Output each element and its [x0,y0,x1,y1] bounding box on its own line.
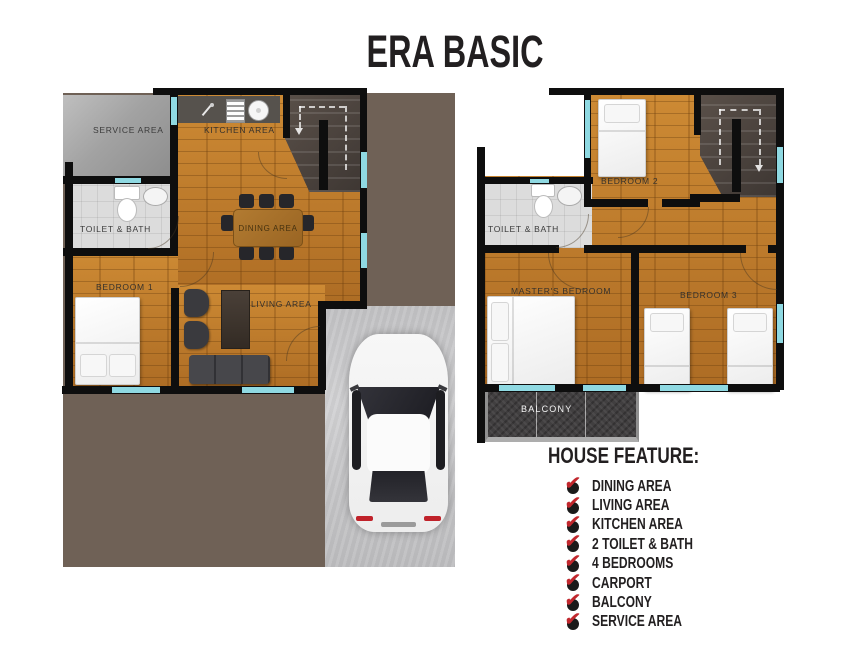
toilet-bath-label-gf: TOILET & BATH [80,224,151,234]
stair-rail [732,119,741,192]
armchair [184,289,209,317]
balcony-area [485,392,639,442]
bed-bedroom3-right [727,308,773,390]
feature-item: 2 TOILET & BATH [565,535,788,554]
wall [776,88,784,390]
toilet-bath-label-2f: TOILET & BATH [488,224,559,234]
stairs-down-arrow-icon [295,128,303,135]
features-list: DINING AREA LIVING AREA KITCHEN AREA 2 T… [565,477,788,632]
window [660,385,728,391]
wall [360,90,367,308]
wall [584,199,648,207]
service-area-label: SERVICE AREA [93,125,164,135]
stair-rail [319,120,328,190]
wall [483,245,559,253]
window [777,147,783,183]
stairs-path [299,106,301,128]
window [171,97,177,125]
car-taillight [424,516,441,521]
feature-item: KITCHEN AREA [565,516,788,535]
dining-chair [259,246,274,260]
bedroom3-label: BEDROOM 3 [680,290,737,300]
floorplan-poster: ERA BASIC DINING AREA [0,0,849,657]
car-taillight [356,516,373,521]
window [585,100,590,158]
feature-item: BALCONY [565,593,788,612]
window [361,233,367,268]
feature-item: CARPORT [565,574,788,593]
house-features: HOUSE FEATURE: DINING AREA LIVING AREA K… [548,443,788,632]
page-title: ERA BASIC [171,26,740,78]
balcony-divider [536,392,537,437]
bed-bedroom3-left [644,308,690,390]
stairs-path [759,109,761,165]
balcony-label: BALCONY [521,404,572,414]
wall [584,245,746,253]
sink-icon-toilet-2f [557,186,582,206]
feature-item: DINING AREA [565,477,788,496]
wall [283,93,290,138]
car-roof [367,414,430,474]
feature-item: LIVING AREA [565,496,788,515]
dining-chair [279,194,294,208]
window [583,385,626,391]
window [112,387,160,393]
wall [153,88,367,95]
feature-item: SERVICE AREA [565,613,788,632]
bed-bedroom1 [75,297,140,385]
window [115,178,141,183]
car-rear-window [369,471,428,502]
stairs-down-arrow-icon [755,165,763,172]
stove-icon [226,99,245,123]
outside-cover [455,90,585,176]
window [777,304,783,343]
window [499,385,555,391]
car-side-window [352,390,361,470]
master-bedroom-label: MASTER'S BEDROOM [511,286,611,296]
car-side-window [436,390,445,470]
kitchen-area-label: KITCHEN AREA [204,125,275,135]
dining-table: DINING AREA [233,209,303,247]
toilet-bowl-2f [534,195,553,218]
service-area [63,95,175,180]
balcony-divider [585,392,586,437]
window [530,179,549,183]
car [349,334,448,532]
dining-area-label: DINING AREA [238,224,297,233]
bedroom2-label: BEDROOM 2 [601,176,658,186]
dining-chair [239,194,254,208]
armchair [184,321,209,349]
dining-chair [259,194,274,208]
dining-chair [279,246,294,260]
wall [65,162,73,394]
sofa [189,355,270,384]
window [242,387,294,393]
wall [477,147,485,443]
wall [694,93,701,135]
stairs-path [719,109,759,111]
window [361,152,367,188]
stairs-path [719,109,721,165]
stairs-path [345,106,347,170]
toilet-bowl-gf [117,198,137,222]
living-area-label: LIVING AREA [251,299,312,309]
feature-item: 4 BEDROOMS [565,555,788,574]
check-icon [565,614,585,631]
knife-icon-dot [210,103,214,107]
wall [690,194,740,202]
sink-icon-toilet-gf [143,187,168,206]
dining-chair [239,246,254,260]
features-title: HOUSE FEATURE: [548,443,735,469]
wall [63,248,178,256]
coffee-table [221,290,250,349]
bed-master [487,296,575,386]
stairs-path [299,106,345,108]
wall [171,288,179,386]
bed-bedroom2 [598,99,646,177]
sink-icon-kitchen [248,100,269,121]
wall [631,249,639,388]
car-bumper [381,522,416,527]
bedroom1-label: BEDROOM 1 [96,282,153,292]
